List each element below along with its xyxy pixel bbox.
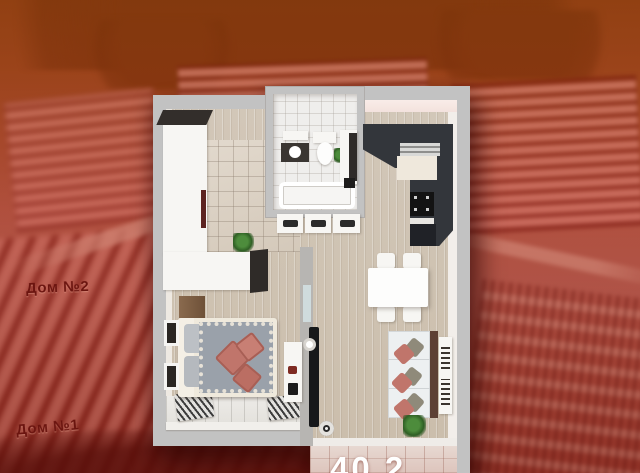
cabinet-handle xyxy=(283,220,298,227)
books xyxy=(441,345,450,369)
hall-plant xyxy=(233,233,254,252)
apartment-building xyxy=(4,88,167,233)
hall-door-slit xyxy=(201,190,206,228)
parking-lot xyxy=(459,279,640,473)
dining-chair xyxy=(377,306,395,322)
dresser-decor xyxy=(288,383,298,395)
cabinet-handle xyxy=(340,220,355,227)
range-hood xyxy=(400,143,440,156)
listing-image: { "background": { "labels": [ { "text": … xyxy=(0,0,640,473)
bedroom-balcony-sill xyxy=(166,422,300,430)
dining-chair xyxy=(403,306,421,322)
burner xyxy=(414,196,417,199)
living-balcony-sill xyxy=(310,438,457,446)
burner xyxy=(426,196,429,199)
dresser-decor xyxy=(288,366,297,374)
glass-panel xyxy=(303,285,311,322)
books xyxy=(441,379,450,405)
sofa-seat-line xyxy=(388,388,430,389)
bedroom-wardrobe-end xyxy=(250,249,268,293)
kitchen-worktop xyxy=(397,156,437,180)
bathroom-sink xyxy=(289,146,301,158)
cabinet-handle xyxy=(311,220,326,227)
bathroom-cabinet-door xyxy=(349,133,357,181)
bedside-shelf xyxy=(179,296,205,318)
bathroom-shelf xyxy=(283,131,308,140)
floor-plan-walls xyxy=(153,86,470,473)
bedroom-window xyxy=(164,363,179,390)
fridge xyxy=(410,224,436,246)
floor-plan xyxy=(153,86,470,473)
dining-chair xyxy=(377,253,395,269)
speaker xyxy=(303,338,316,351)
hall-wardrobe-top xyxy=(156,110,213,125)
dining-chair xyxy=(403,253,421,269)
bedroom-window xyxy=(164,320,179,346)
apartment-building xyxy=(451,75,640,234)
hall-wardrobe xyxy=(163,110,207,255)
kitchen-inner-wall xyxy=(365,100,457,112)
floor-lamp xyxy=(319,421,334,436)
burner xyxy=(426,208,429,211)
apartment-area-label: 40,2 xyxy=(330,450,406,473)
bedroom-wardrobe xyxy=(163,252,252,290)
tree-cluster xyxy=(430,10,630,80)
building-label-dom2: Дом №2 xyxy=(26,278,90,297)
burner xyxy=(414,208,417,211)
bath-tray xyxy=(344,178,355,188)
dining-table xyxy=(368,268,428,307)
living-plant xyxy=(403,415,426,437)
sofa-frame xyxy=(430,331,438,418)
